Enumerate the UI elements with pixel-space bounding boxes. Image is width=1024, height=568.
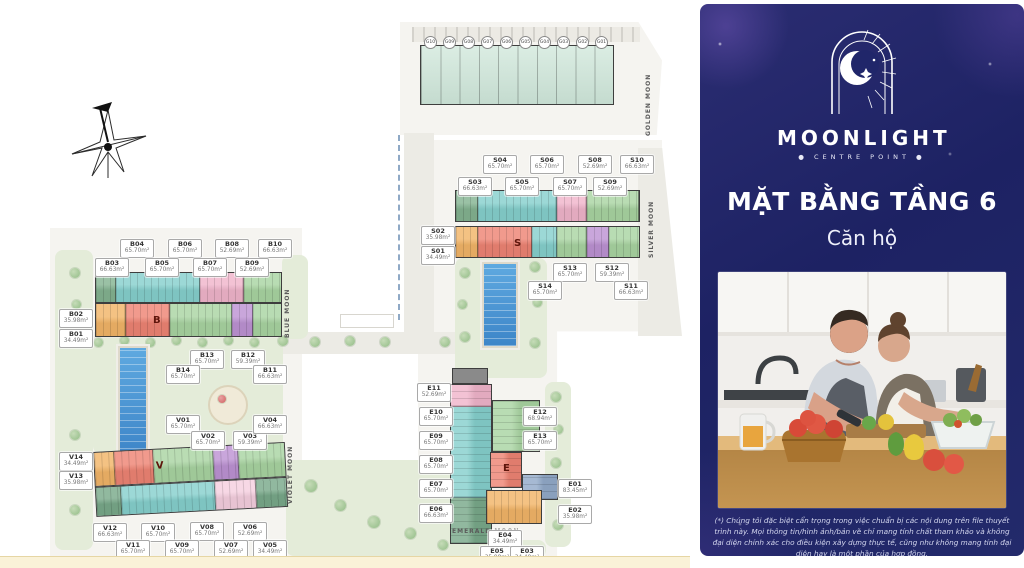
block-v-group: V — [93, 442, 288, 518]
pool-bv — [118, 346, 148, 458]
playground-equipment — [218, 395, 226, 403]
unit-label-s08: S0852.69m² — [578, 155, 612, 174]
unit-label-e13: E1365.70m² — [523, 431, 557, 450]
floorplan-slide: G10 G09 G08 G07 G06 G05 G04 G03 G02 G01 … — [0, 0, 1024, 568]
unit-label-b08: B0852.69m² — [215, 239, 249, 258]
tree — [438, 540, 448, 550]
tree — [305, 480, 317, 492]
unit-label-v04: V0466.63m² — [253, 415, 287, 434]
brand-tagline: ● CENTRE POINT ● — [777, 153, 947, 161]
unit-label-s01: S0134.49m² — [421, 246, 455, 265]
unit-circle: G06 — [500, 36, 513, 49]
unit-label-b04: B0465.70m² — [120, 239, 154, 258]
tree — [72, 300, 81, 309]
tree — [310, 337, 320, 347]
unit-circle: G01 — [595, 36, 608, 49]
unit-label-e10: E1065.70m² — [419, 407, 453, 426]
unit-label-s04: S0465.70m² — [483, 155, 517, 174]
bottom-accent-bar — [0, 556, 690, 568]
unit-label-s13: S1365.70m² — [553, 263, 587, 282]
unit-label-b02: B0235.98m² — [59, 309, 93, 328]
unit-label-s03: S0366.63m² — [458, 177, 492, 196]
unit-label-b11: B1166.63m² — [253, 365, 287, 384]
unit-circle: G05 — [519, 36, 532, 49]
unit-label-s06: S0665.70m² — [530, 155, 564, 174]
unit-label-e11: E1152.69m² — [417, 383, 451, 402]
site-plan: G10 G09 G08 G07 G06 G05 G04 G03 G02 G01 … — [0, 0, 700, 568]
block-letter-e: E — [503, 463, 510, 474]
block-letter-v: V — [156, 460, 164, 471]
moonlight-arch-moon-icon — [802, 22, 922, 118]
tree — [70, 268, 80, 278]
plaza — [340, 314, 394, 328]
unit-label-v13: V1335.98m² — [59, 471, 93, 490]
unit-label-b14: B1465.70m² — [166, 365, 200, 384]
tree — [460, 268, 470, 278]
unit-label-s09: S0952.69m² — [593, 177, 627, 196]
unit-label-e08: E0865.70m² — [419, 455, 453, 474]
unit-label-v02: V0265.70m² — [191, 431, 225, 450]
page-subtitle: Căn hộ — [700, 226, 1024, 250]
unit-label-e07: E0765.70m² — [419, 479, 453, 498]
tree — [551, 458, 561, 468]
tree — [440, 337, 450, 347]
unit-label-b05: B0565.70m² — [145, 258, 179, 277]
boundary-dashed-line — [398, 135, 400, 320]
tree — [120, 336, 129, 345]
unit-label-s11: S1166.63m² — [614, 281, 648, 300]
tree — [94, 338, 103, 347]
unit-label-v08: V0865.70m² — [190, 522, 224, 541]
unit-label-b03: B0366.63m² — [95, 258, 129, 277]
tree — [551, 392, 561, 402]
unit-label-b10: B1066.63m² — [258, 239, 292, 258]
unit-label-b07: B0765.70m² — [193, 258, 227, 277]
tree — [70, 505, 80, 515]
unit-label-e06: E0666.63m² — [419, 504, 453, 523]
block-letter-s: S — [514, 238, 521, 249]
tree — [345, 336, 355, 346]
block-golden-moon — [420, 45, 614, 105]
wing-label-violet: VIOLET MOON — [287, 452, 294, 504]
unit-label-e09: E0965.70m² — [419, 431, 453, 450]
unit-circle: G03 — [557, 36, 570, 49]
unit-label-b09: B0952.69m² — [235, 258, 269, 277]
unit-label-e02: E0235.98m² — [558, 505, 592, 524]
tree — [368, 516, 380, 528]
block-b-south — [95, 303, 282, 337]
tree — [172, 336, 181, 345]
unit-label-v06: V0652.69m² — [233, 522, 267, 541]
unit-circle: G02 — [576, 36, 589, 49]
block-e-core — [452, 368, 488, 384]
block-s-south — [455, 226, 640, 258]
tree — [530, 338, 540, 348]
brand-panel: MOONLIGHT ● CENTRE POINT ● MẶT BẰNG TẦNG… — [700, 4, 1024, 556]
tree — [405, 528, 416, 539]
tree — [460, 332, 470, 342]
unit-label-s12: S1259.39m² — [595, 263, 629, 282]
playground — [208, 385, 248, 425]
unit-label-e12: E1268.94m² — [523, 407, 557, 426]
pool-se — [482, 262, 518, 348]
unit-circle: G10 — [424, 36, 437, 49]
tree — [335, 500, 346, 511]
unit-label-b01: B0134.49m² — [59, 329, 93, 348]
unit-label-b06: B0665.70m² — [168, 239, 202, 258]
unit-circle: G08 — [462, 36, 475, 49]
unit-circle: G04 — [538, 36, 551, 49]
block-e-orange — [486, 490, 542, 524]
kitchen-scene-illustration — [718, 272, 1006, 508]
tree — [458, 300, 467, 309]
unit-label-v14: V1434.49m² — [59, 452, 93, 471]
disclaimer-text: (*) Chúng tôi đặc biệt cẩn trọng trong v… — [712, 516, 1012, 556]
tree — [198, 338, 207, 347]
wing-label-silver: SILVER MOON — [648, 192, 655, 258]
unit-label-e01: E0183.45m² — [558, 479, 592, 498]
wing-label-golden: GOLDEN MOON — [645, 58, 652, 136]
kitchen-couple-photo — [718, 272, 1006, 508]
tree — [380, 337, 390, 347]
compass-north-icon — [58, 92, 158, 184]
block-letter-b: B — [153, 315, 161, 326]
unit-label-s05: S0565.70m² — [505, 177, 539, 196]
unit-circle: G07 — [481, 36, 494, 49]
tree — [224, 336, 233, 345]
tree — [70, 430, 80, 440]
tree — [250, 338, 259, 347]
unit-circle: G09 — [443, 36, 456, 49]
unit-label-s14: S1465.70m² — [528, 281, 562, 300]
wing-label-blue: BLUE MOON — [284, 300, 291, 338]
unit-label-s07: S0765.70m² — [553, 177, 587, 196]
road-silver — [638, 148, 682, 336]
unit-label-s02: S0235.98m² — [421, 226, 455, 245]
tree — [530, 262, 540, 272]
page-title: MẶT BẰNG TẦNG 6 — [700, 187, 1024, 216]
unit-label-s10: S1066.63m² — [620, 155, 654, 174]
brand-name: MOONLIGHT — [777, 126, 947, 150]
moonlight-logo: MOONLIGHT ● CENTRE POINT ● — [777, 22, 947, 161]
